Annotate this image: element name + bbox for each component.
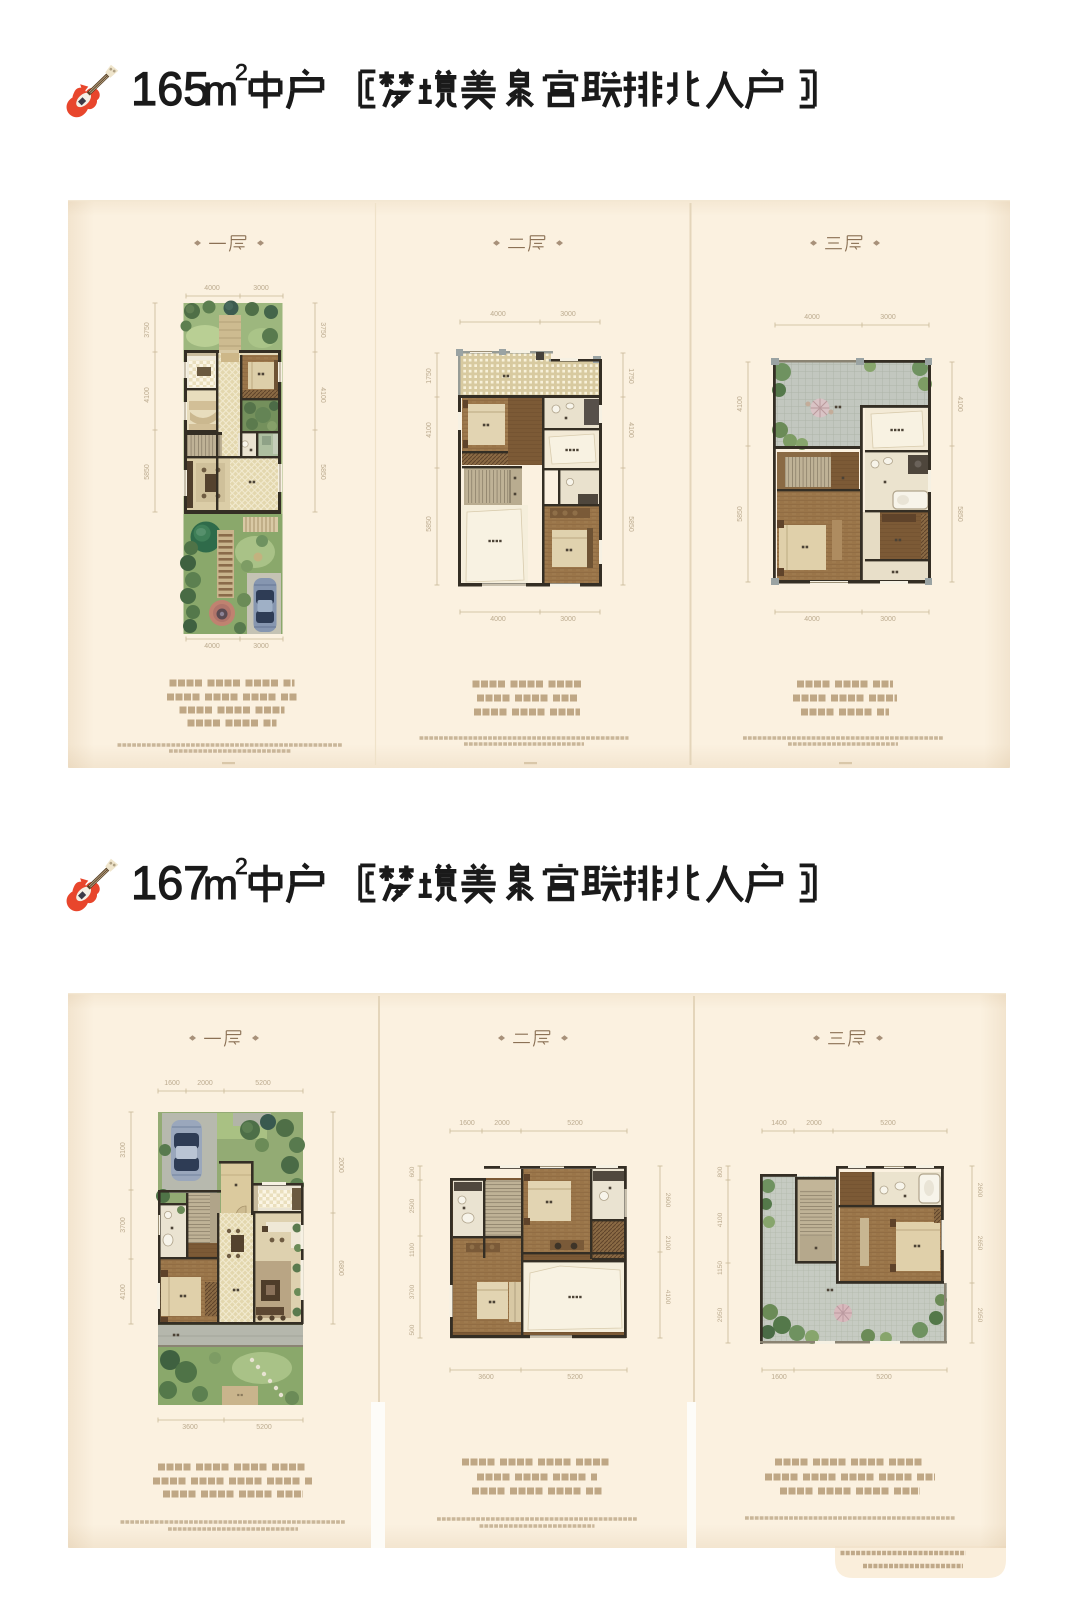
svg-text:4000: 4000 — [804, 314, 820, 321]
svg-text:5200: 5200 — [567, 1374, 583, 1381]
svg-text:3750: 3750 — [319, 322, 326, 338]
svg-text:3000: 3000 — [253, 643, 269, 650]
svg-text:5200: 5200 — [255, 1080, 271, 1087]
svg-text:5850: 5850 — [737, 506, 744, 522]
svg-text:4100: 4100 — [319, 387, 326, 403]
svg-text:4100: 4100 — [664, 1290, 671, 1305]
svg-text:2500: 2500 — [409, 1198, 416, 1213]
svg-text:3700: 3700 — [409, 1284, 416, 1299]
svg-text:165: 165 — [131, 62, 209, 115]
svg-text:3600: 3600 — [182, 1424, 198, 1431]
svg-text:2600: 2600 — [976, 1183, 983, 1198]
svg-text:2000: 2000 — [197, 1080, 213, 1087]
svg-text:1100: 1100 — [409, 1243, 416, 1257]
svg-text:4100: 4100 — [426, 422, 433, 438]
svg-text:2000: 2000 — [494, 1120, 510, 1127]
svg-text:167: 167 — [131, 856, 209, 909]
svg-text:5200: 5200 — [567, 1120, 583, 1127]
svg-text:2: 2 — [235, 853, 248, 879]
svg-text:1400: 1400 — [771, 1120, 787, 1127]
svg-text:2650: 2650 — [976, 1236, 983, 1251]
svg-text:5850: 5850 — [319, 464, 326, 480]
svg-text:3000: 3000 — [560, 311, 576, 318]
svg-text:1750: 1750 — [426, 368, 433, 384]
svg-text:m: m — [203, 861, 238, 908]
svg-text:4100: 4100 — [956, 396, 963, 412]
svg-text:3600: 3600 — [478, 1374, 494, 1381]
svg-text:5200: 5200 — [256, 1424, 272, 1431]
svg-text:1750: 1750 — [627, 368, 634, 384]
svg-text:800: 800 — [717, 1166, 724, 1177]
svg-text:2950: 2950 — [717, 1307, 724, 1322]
svg-text:4000: 4000 — [804, 616, 820, 623]
svg-text:2000: 2000 — [337, 1157, 344, 1173]
svg-text:3700: 3700 — [120, 1217, 127, 1233]
svg-text:2600: 2600 — [664, 1193, 671, 1208]
svg-text:4100: 4100 — [144, 387, 151, 403]
svg-text:1150: 1150 — [717, 1261, 724, 1275]
svg-text:4100: 4100 — [717, 1212, 724, 1227]
svg-text:3000: 3000 — [253, 285, 269, 292]
svg-text:2000: 2000 — [806, 1120, 822, 1127]
svg-text:1600: 1600 — [164, 1080, 180, 1087]
svg-text:2950: 2950 — [976, 1308, 983, 1323]
svg-text:4000: 4000 — [490, 616, 506, 623]
svg-text:4000: 4000 — [204, 285, 220, 292]
svg-text:3100: 3100 — [120, 1142, 127, 1158]
svg-text:3750: 3750 — [144, 322, 151, 338]
svg-text:500: 500 — [409, 1324, 416, 1335]
svg-text:6800: 6800 — [337, 1260, 344, 1276]
svg-text:5200: 5200 — [880, 1120, 896, 1127]
svg-text:1600: 1600 — [459, 1120, 475, 1127]
svg-text:3000: 3000 — [880, 314, 896, 321]
svg-text:4100: 4100 — [737, 396, 744, 412]
svg-text:2: 2 — [235, 59, 248, 85]
svg-text:4000: 4000 — [490, 311, 506, 318]
svg-text:4000: 4000 — [204, 643, 220, 650]
svg-text:5850: 5850 — [426, 516, 433, 532]
svg-text:4100: 4100 — [627, 422, 634, 438]
svg-text:3000: 3000 — [880, 616, 896, 623]
svg-text:5850: 5850 — [627, 516, 634, 532]
svg-text:3000: 3000 — [560, 616, 576, 623]
svg-text:2100: 2100 — [664, 1236, 671, 1251]
svg-text:600: 600 — [409, 1166, 416, 1177]
svg-text:5850: 5850 — [956, 506, 963, 522]
svg-text:5850: 5850 — [144, 464, 151, 480]
svg-text:4100: 4100 — [120, 1284, 127, 1300]
svg-text:m: m — [203, 67, 238, 114]
svg-text:1600: 1600 — [771, 1374, 787, 1381]
svg-text:5200: 5200 — [876, 1374, 892, 1381]
